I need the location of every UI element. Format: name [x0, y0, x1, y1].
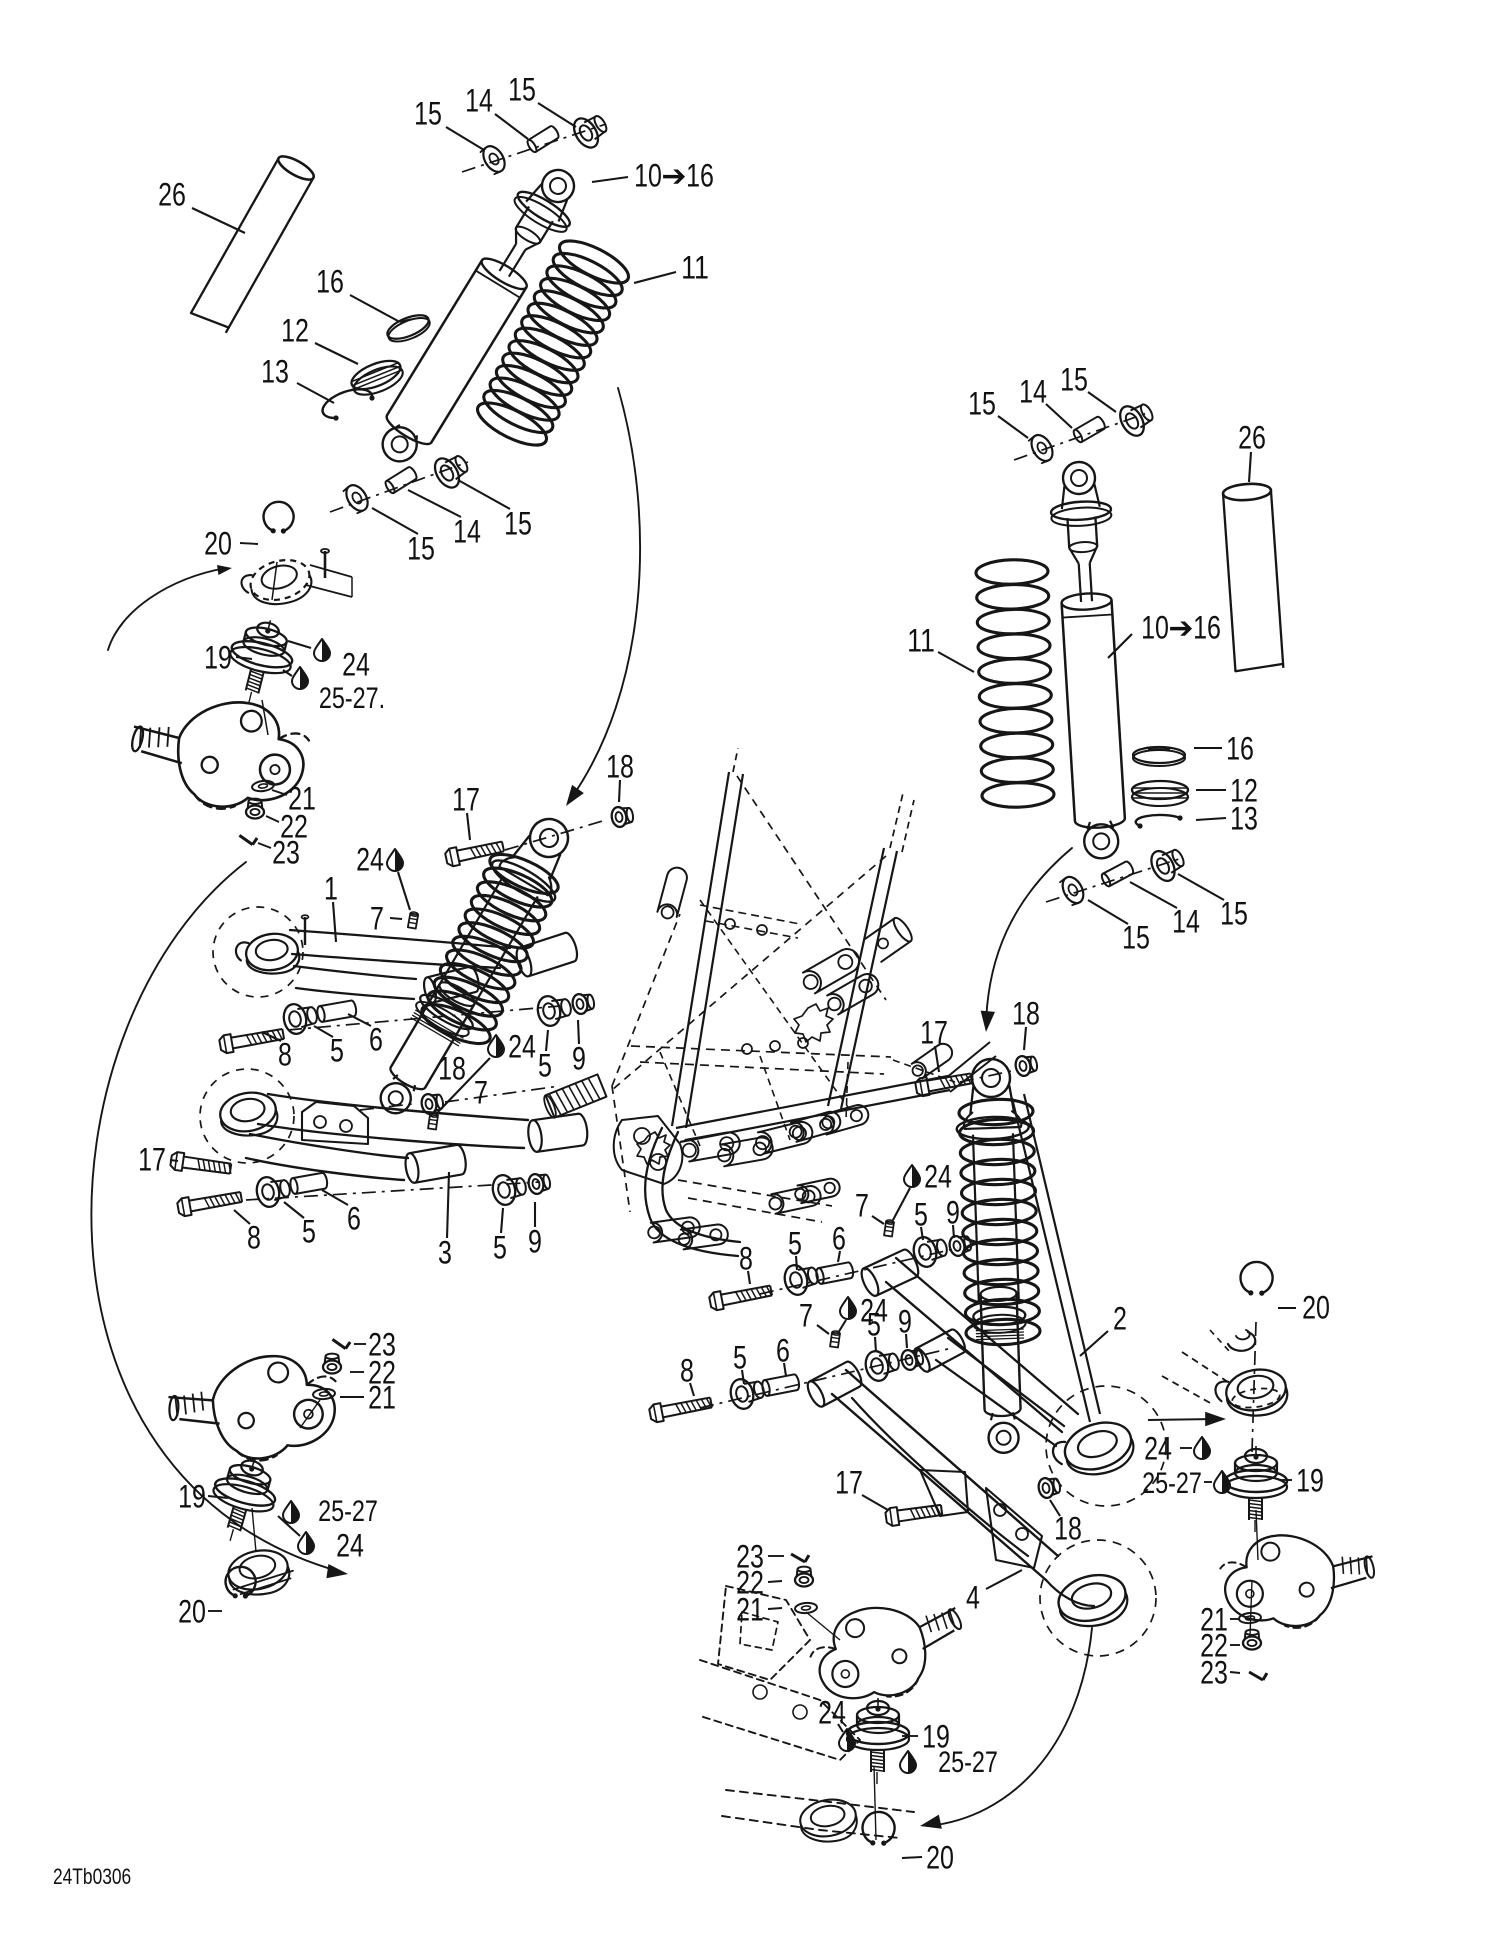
svg-text:7: 7 [855, 1188, 869, 1224]
svg-text:5: 5 [330, 1033, 344, 1069]
svg-text:24: 24 [356, 842, 384, 878]
svg-text:24Tb0306: 24Tb0306 [53, 1864, 131, 1889]
svg-text:9: 9 [528, 1224, 542, 1260]
svg-text:18: 18 [1012, 996, 1040, 1032]
svg-text:2: 2 [1113, 1301, 1127, 1337]
svg-text:1: 1 [324, 871, 338, 907]
svg-text:15: 15 [504, 506, 532, 542]
svg-text:8: 8 [739, 1241, 753, 1277]
svg-text:15: 15 [1122, 920, 1150, 956]
svg-text:14: 14 [465, 83, 493, 119]
svg-text:15: 15 [968, 386, 996, 422]
svg-text:26: 26 [158, 177, 186, 213]
svg-text:19: 19 [204, 640, 232, 676]
svg-text:21: 21 [736, 1592, 764, 1628]
svg-text:17: 17 [452, 782, 480, 818]
svg-text:24: 24 [1144, 1431, 1172, 1467]
svg-text:20: 20 [926, 1840, 954, 1876]
svg-text:5: 5 [493, 1230, 507, 1266]
svg-text:17: 17 [138, 1142, 166, 1178]
svg-text:18: 18 [438, 1051, 466, 1087]
svg-text:8: 8 [247, 1220, 261, 1256]
svg-text:14: 14 [453, 514, 481, 550]
svg-text:10: 10 [634, 158, 662, 194]
svg-text:14: 14 [1019, 374, 1047, 410]
svg-text:4: 4 [966, 1580, 980, 1616]
svg-text:15: 15 [414, 96, 442, 132]
svg-text:6: 6 [369, 1022, 383, 1058]
svg-text:8: 8 [680, 1353, 694, 1389]
svg-text:7: 7 [474, 1075, 488, 1111]
svg-text:5: 5 [302, 1214, 316, 1250]
svg-text:3: 3 [438, 1235, 452, 1271]
svg-text:7: 7 [799, 1298, 813, 1334]
svg-text:19: 19 [1296, 1463, 1324, 1499]
svg-text:24: 24 [508, 1029, 536, 1065]
svg-text:24: 24 [342, 647, 370, 683]
svg-text:20: 20 [178, 1594, 206, 1630]
svg-text:13: 13 [1230, 801, 1258, 837]
svg-text:11: 11 [681, 250, 709, 286]
svg-text:7: 7 [370, 901, 384, 937]
svg-text:16: 16 [1226, 731, 1254, 767]
svg-text:6: 6 [347, 1201, 361, 1237]
svg-text:25-27.: 25-27. [319, 682, 385, 715]
svg-text:10: 10 [1141, 610, 1169, 646]
svg-text:19: 19 [178, 1479, 206, 1515]
svg-text:5: 5 [733, 1340, 747, 1376]
svg-text:16: 16 [1193, 610, 1221, 646]
svg-text:18: 18 [606, 749, 634, 785]
svg-text:6: 6 [776, 1333, 790, 1369]
svg-text:15: 15 [508, 72, 536, 108]
svg-text:25-27: 25-27 [318, 1495, 378, 1528]
svg-text:➔: ➔ [1168, 612, 1193, 645]
svg-text:5: 5 [538, 1048, 552, 1084]
svg-text:➔: ➔ [661, 160, 686, 193]
svg-text:17: 17 [920, 1015, 948, 1051]
svg-text:23: 23 [1200, 1655, 1228, 1691]
svg-text:15: 15 [407, 531, 435, 567]
svg-text:16: 16 [316, 264, 344, 300]
svg-text:11: 11 [907, 623, 935, 659]
svg-text:18: 18 [1054, 1511, 1082, 1547]
svg-text:14: 14 [1172, 904, 1200, 940]
svg-text:16: 16 [686, 158, 714, 194]
svg-text:20: 20 [204, 526, 232, 562]
svg-text:24: 24 [924, 1159, 952, 1195]
svg-text:9: 9 [572, 1041, 586, 1077]
svg-text:24: 24 [860, 1293, 888, 1329]
svg-text:20: 20 [1302, 1290, 1330, 1326]
svg-text:13: 13 [261, 354, 289, 390]
svg-text:23: 23 [272, 835, 300, 871]
svg-text:21: 21 [368, 1380, 396, 1416]
svg-text:24: 24 [336, 1528, 364, 1564]
svg-text:8: 8 [278, 1037, 292, 1073]
svg-text:25-27: 25-27 [938, 1746, 998, 1779]
svg-text:26: 26 [1238, 420, 1266, 456]
svg-text:17: 17 [835, 1465, 863, 1501]
svg-text:25-27: 25-27 [1142, 1467, 1202, 1500]
svg-text:15: 15 [1220, 896, 1248, 932]
svg-text:12: 12 [281, 313, 309, 349]
svg-text:15: 15 [1060, 362, 1088, 398]
